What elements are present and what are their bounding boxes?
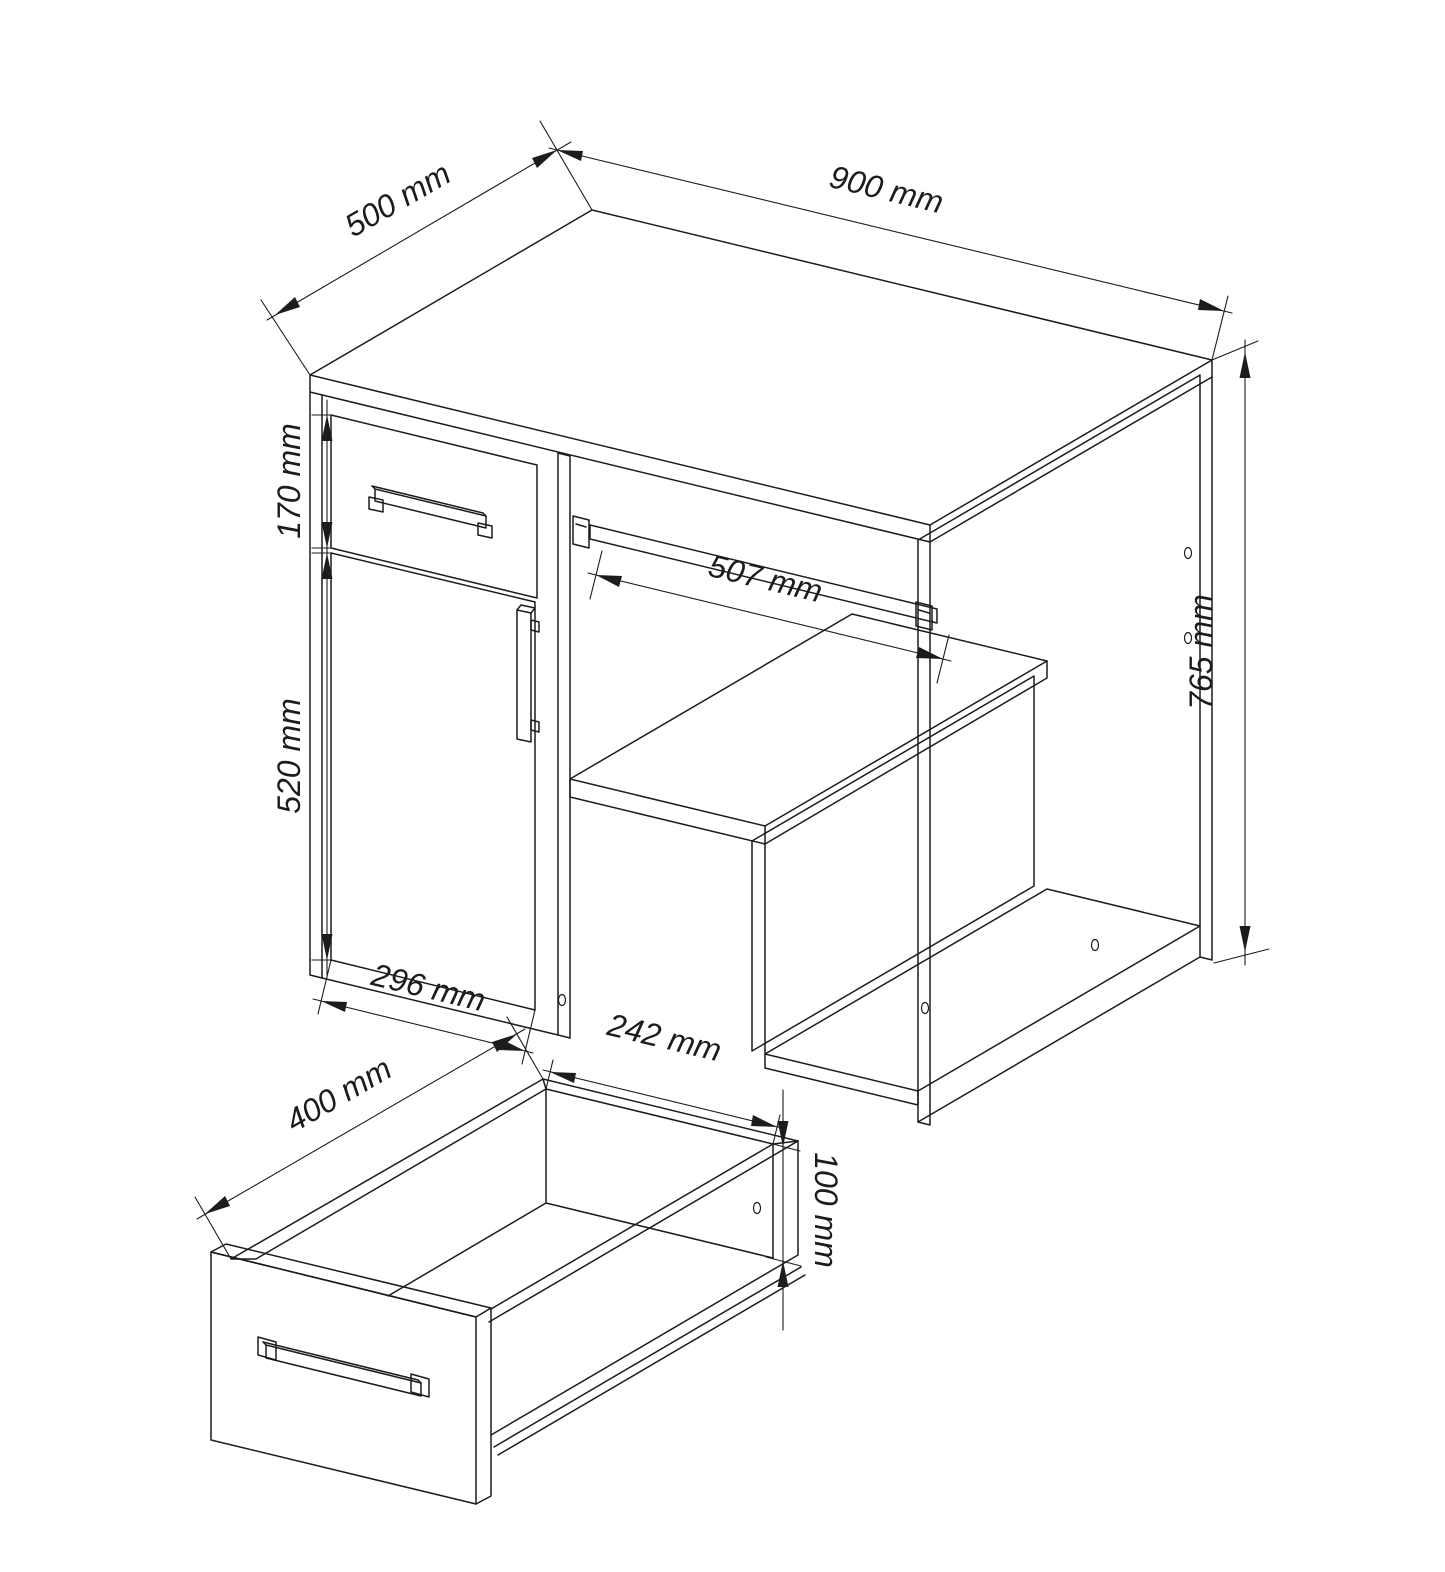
left-side-panel [310, 392, 322, 978]
dim-label-drawer-depth: 400 mm [279, 1050, 397, 1139]
cabinet-door [331, 553, 535, 1010]
dim-label-drawer-inner-width: 242 mm [603, 1006, 725, 1068]
desk-view: 500 mm 900 mm 170 mm 520 mm 29 [261, 121, 1269, 1125]
dim-width: 900 mm [549, 148, 1232, 360]
page: 500 mm 900 mm 170 mm 520 mm 29 [0, 0, 1445, 1572]
dim-label-door-width: 296 mm [367, 956, 489, 1018]
drawer-front [331, 415, 537, 598]
dim-drawer-depth: 400 mm [195, 1017, 543, 1259]
drawer-box [231, 1079, 798, 1435]
technical-drawing-canvas: 500 mm 900 mm 170 mm 520 mm 29 [0, 0, 1445, 1572]
dim-front-heights: 170 mm 520 mm [271, 400, 333, 975]
dim-label-drawer-inner-height: 100 mm [808, 1152, 844, 1268]
support-panel [752, 676, 1034, 1054]
slide-rails [494, 1267, 805, 1455]
dim-label-door-height: 520 mm [271, 698, 307, 814]
dim-label-total-height: 765 mm [1183, 594, 1219, 710]
drawer-detail-view: 400 mm 242 mm 100 mm [195, 1006, 844, 1504]
cam-holes [559, 548, 1192, 1014]
dim-door-width: 296 mm [313, 956, 535, 1064]
dim-label-tray-width: 507 mm [705, 547, 826, 609]
right-side-panel [918, 375, 1212, 1125]
drawer-front-panel [211, 1244, 491, 1504]
dim-total-height: 765 mm [1183, 340, 1269, 965]
dim-label-drawer-front-height: 170 mm [271, 423, 307, 539]
center-divider [558, 453, 570, 1038]
dim-label-width: 900 mm [826, 158, 947, 220]
desktop [310, 210, 1212, 542]
drawer-detail-handle [258, 1337, 429, 1397]
bottom-shelf [765, 889, 1200, 1105]
drawer-handle [369, 486, 492, 538]
dim-depth: 500 mm [261, 121, 592, 375]
cam-hole [754, 1203, 761, 1214]
middle-shelf [570, 614, 1047, 844]
dim-label-depth: 500 mm [338, 155, 456, 244]
dim-drawer-inner-width: 242 mm [543, 1006, 786, 1144]
